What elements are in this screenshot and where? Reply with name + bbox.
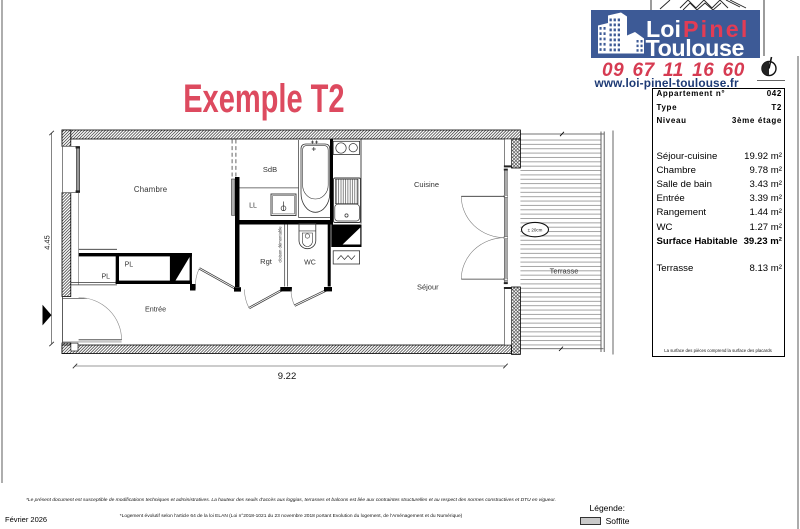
svg-text:PL: PL (125, 261, 134, 268)
svg-text:± 20cm: ± 20cm (528, 227, 543, 232)
svg-text:Terrasse: Terrasse (550, 266, 579, 275)
svg-text:9.22: 9.22 (278, 371, 297, 382)
svg-text:Chambre: Chambre (134, 185, 167, 194)
svg-text:SdB: SdB (263, 165, 277, 174)
svg-text:4.45: 4.45 (42, 235, 51, 249)
svg-text:Cuisine: Cuisine (414, 180, 439, 189)
svg-text:Exemple T2: Exemple T2 (183, 77, 344, 122)
svg-text:WC: WC (304, 260, 316, 267)
svg-text:PL: PL (102, 273, 111, 280)
svg-text:LL: LL (249, 203, 257, 210)
svg-text:Entrée: Entrée (145, 304, 166, 313)
svg-text:Rgt: Rgt (260, 257, 273, 266)
svg-text:Séjour: Séjour (417, 283, 439, 292)
svg-text:cloison démontable: cloison démontable (278, 226, 283, 263)
